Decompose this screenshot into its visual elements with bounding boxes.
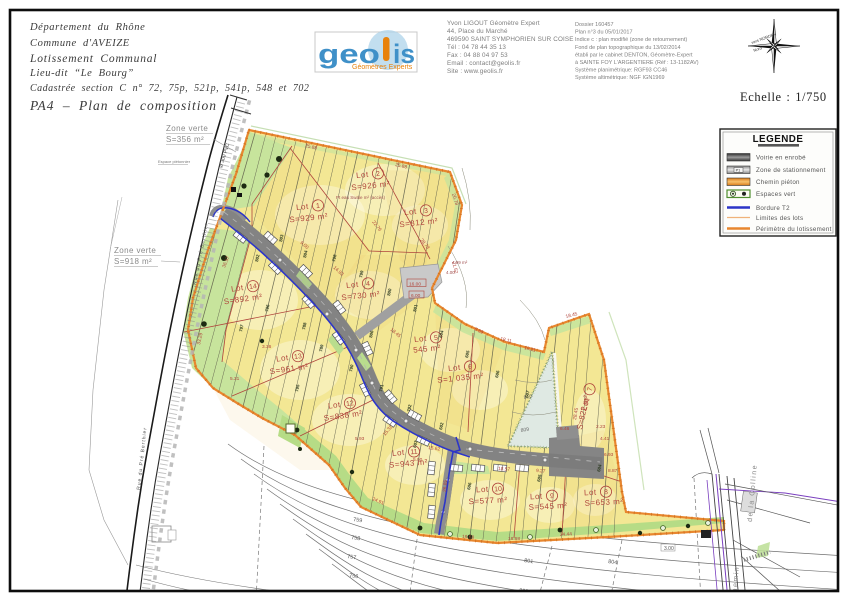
svg-text:Chemin: Chemin bbox=[731, 566, 741, 600]
svg-text:Zone de stationnement: Zone de stationnement bbox=[756, 167, 826, 174]
svg-text:4.41: 4.41 bbox=[600, 436, 610, 442]
svg-text:Lot: Lot bbox=[414, 334, 428, 344]
svg-text:6.46: 6.46 bbox=[560, 426, 570, 432]
svg-text:Lot: Lot bbox=[530, 492, 543, 502]
svg-text:Géomètres Experts: Géomètres Experts bbox=[352, 64, 413, 71]
svg-text:S=918 m²: S=918 m² bbox=[114, 257, 152, 266]
svg-text:Zone verte: Zone verte bbox=[166, 124, 208, 133]
svg-text:10: 10 bbox=[494, 486, 502, 493]
svg-text:8: 8 bbox=[604, 489, 608, 496]
svg-text:à SAINTE FOY L'ARGENTIERE: à SAINTE FOY L'ARGENTIERE (Réf : 13-1182… bbox=[575, 60, 699, 66]
svg-text:26.85: 26.85 bbox=[442, 479, 449, 492]
svg-text:13: 13 bbox=[294, 353, 303, 361]
svg-text:Lieu-dit “Le Bourg”: Lieu-dit “Le Bourg” bbox=[29, 68, 134, 79]
svg-text:19.68: 19.68 bbox=[462, 534, 475, 541]
svg-text:11: 11 bbox=[410, 449, 418, 457]
svg-text:Dossier 160457: Dossier 160457 bbox=[575, 22, 614, 28]
svg-text:18.68: 18.68 bbox=[508, 536, 520, 542]
svg-text:Cadastrée section C n° 72, 75p: Cadastrée section C n° 72, 75p, 521p, 54… bbox=[30, 83, 309, 94]
svg-text:Tél : 04 78 44 35 13: Tél : 04 78 44 35 13 bbox=[447, 44, 506, 51]
svg-text:Indice c : plan modifié (: Indice c : plan modifié (zone de retourn… bbox=[575, 37, 687, 43]
svg-text:Système planimétrique: RGF93: Système planimétrique: RGF93 CC46 bbox=[575, 68, 667, 74]
svg-text:Périmètre du lotissement: Périmètre du lotissement bbox=[756, 226, 832, 233]
svg-text:Lot: Lot bbox=[276, 353, 290, 364]
svg-text:LEGENDE: LEGENDE bbox=[753, 134, 804, 145]
svg-text:4.00: 4.00 bbox=[446, 270, 455, 275]
svg-text:44, Place du Marché: 44, Place du Marché bbox=[447, 28, 508, 35]
svg-text:Lot: Lot bbox=[296, 202, 310, 212]
svg-text:5.93: 5.93 bbox=[355, 436, 365, 442]
svg-text:3.36: 3.36 bbox=[262, 344, 272, 350]
svg-text:Département du Rhône: Département du Rhône bbox=[29, 22, 145, 33]
svg-text:759: 759 bbox=[353, 517, 363, 524]
svg-text:Lot: Lot bbox=[476, 485, 489, 495]
svg-text:5.31: 5.31 bbox=[230, 376, 240, 382]
svg-text:Lot: Lot bbox=[404, 207, 418, 217]
svg-text:Echelle : 1/750: Echelle : 1/750 bbox=[740, 90, 827, 104]
svg-text:Chemin piéton: Chemin piéton bbox=[756, 179, 800, 186]
svg-text:Yvon LIGOUT Géomètre Expert: Yvon LIGOUT Géomètre Expert bbox=[447, 20, 540, 27]
svg-text:Lot: Lot bbox=[231, 283, 245, 294]
svg-text:établi par le cabinet DENT: établi par le cabinet DENTON, Géomètre-E… bbox=[575, 52, 693, 58]
svg-text:9: 9 bbox=[550, 493, 554, 500]
svg-text:Email : contact@geolis.fr: Email : contact@geolis.fr bbox=[447, 60, 521, 67]
svg-text:Fax : 04 88 04 97 53: Fax : 04 88 04 97 53 bbox=[447, 52, 508, 59]
svg-text:9.27: 9.27 bbox=[536, 468, 546, 475]
svg-text:Lot: Lot bbox=[392, 448, 406, 458]
svg-text:801: 801 bbox=[524, 558, 534, 565]
svg-text:Zone verte: Zone verte bbox=[114, 246, 156, 255]
svg-text:S=356 m²: S=356 m² bbox=[166, 135, 204, 144]
svg-text:Lotissement Communal: Lotissement Communal bbox=[29, 53, 157, 65]
svg-text:Lot: Lot bbox=[328, 400, 342, 411]
svg-text:Plan n°3 du 05/01/2017: Plan n°3 du 05/01/2017 bbox=[575, 30, 633, 36]
svg-text:469590 SAINT SYMPHORIEN SUR: 469590 SAINT SYMPHORIEN SUR COISE bbox=[447, 36, 574, 43]
svg-text:18.57: 18.57 bbox=[498, 466, 511, 473]
svg-text:6.93: 6.93 bbox=[604, 452, 614, 458]
svg-text:Fond de plan topographique: Fond de plan topographique du 13/02/2014 bbox=[575, 45, 681, 51]
svg-text:PA4 – Plan de composition: PA4 – Plan de composition bbox=[29, 98, 217, 113]
svg-text:Système altimétrique: NGF I: Système altimétrique: NGF IGN1969 bbox=[575, 75, 665, 81]
svg-text:758: 758 bbox=[351, 535, 361, 542]
svg-text:Commune d'AVEIZE: Commune d'AVEIZE bbox=[30, 38, 130, 49]
svg-text:P1: P1 bbox=[736, 169, 741, 173]
svg-text:Lot: Lot bbox=[584, 488, 597, 498]
svg-text:Bordure T2: Bordure T2 bbox=[756, 205, 790, 212]
svg-text:757: 757 bbox=[347, 554, 357, 561]
svg-text:756: 756 bbox=[349, 573, 359, 580]
svg-text:Espaces vert: Espaces vert bbox=[756, 191, 795, 198]
svg-text:4.99 m²: 4.99 m² bbox=[452, 260, 468, 265]
svg-text:5.00: 5.00 bbox=[413, 457, 423, 463]
svg-text:Lot: Lot bbox=[346, 280, 360, 290]
svg-text:Site : www.geolis.fr: Site : www.geolis.fr bbox=[447, 68, 503, 75]
svg-text:804: 804 bbox=[608, 559, 618, 566]
svg-text:8.87: 8.87 bbox=[608, 468, 618, 474]
svg-text:Limites des lots: Limites des lots bbox=[756, 215, 803, 222]
svg-text:Voirie en enrobé: Voirie en enrobé bbox=[756, 155, 806, 162]
svg-text:14: 14 bbox=[249, 283, 258, 291]
svg-text:2.23: 2.23 bbox=[596, 424, 606, 430]
svg-text:Lot: Lot bbox=[356, 170, 370, 180]
svg-text:24.44: 24.44 bbox=[560, 531, 573, 538]
svg-text:Espace piétonnier: Espace piétonnier bbox=[158, 159, 191, 164]
svg-text:Pt eau Swale m² (accès): Pt eau Swale m² (accès) bbox=[336, 195, 386, 200]
svg-text:Lot: Lot bbox=[448, 363, 462, 373]
svg-text:12: 12 bbox=[346, 400, 355, 408]
